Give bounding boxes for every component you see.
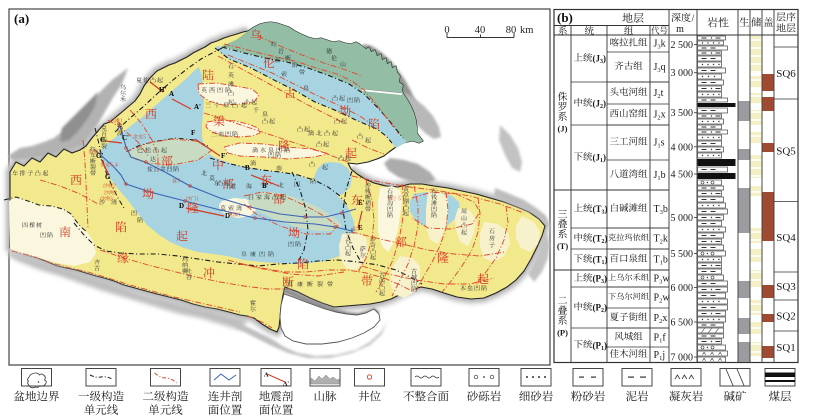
- svg-text:SQ6: SQ6: [776, 68, 796, 80]
- svg-text:5 000: 5 000: [671, 213, 694, 224]
- svg-text:(P3): (P3): [593, 274, 608, 286]
- svg-text:3 500: 3 500: [671, 108, 694, 119]
- svg-text:(T2): (T2): [593, 234, 608, 246]
- svg-text:C: C: [100, 136, 105, 144]
- svg-text:(T): (T): [557, 241, 569, 251]
- svg-text:(J2): (J2): [593, 99, 607, 111]
- svg-text:G: G: [105, 173, 111, 181]
- svg-text:F: F: [191, 129, 195, 137]
- svg-text:B': B': [262, 182, 269, 190]
- svg-text:F': F': [221, 152, 227, 160]
- svg-text:5 500: 5 500: [671, 249, 694, 260]
- svg-text:A: A: [264, 373, 269, 379]
- svg-text:6 000: 6 000: [671, 283, 694, 294]
- svg-text:SQ4: SQ4: [776, 232, 796, 244]
- svg-text:40: 40: [475, 25, 486, 36]
- svg-text:6 500: 6 500: [671, 318, 694, 329]
- svg-text:2 500: 2 500: [671, 40, 694, 51]
- svg-text:B: B: [245, 164, 250, 172]
- svg-text:(T1): (T1): [593, 255, 608, 267]
- svg-text:P3w: P3w: [654, 274, 671, 286]
- svg-text:SQ1: SQ1: [776, 342, 796, 354]
- svg-text:A': A': [194, 103, 201, 111]
- svg-text:(J): (J): [558, 124, 568, 134]
- svg-text:(P): (P): [557, 327, 568, 337]
- svg-text:7 000: 7 000: [671, 353, 694, 364]
- svg-text:0: 0: [444, 25, 449, 36]
- svg-text:(a): (a): [14, 11, 29, 26]
- svg-text:(P1): (P1): [593, 340, 608, 352]
- svg-text:SQ2: SQ2: [776, 311, 796, 323]
- svg-text:P2w: P2w: [654, 293, 671, 305]
- svg-text:4 500: 4 500: [671, 170, 694, 181]
- svg-text:(T3): (T3): [593, 204, 608, 216]
- svg-text:80: 80: [506, 25, 517, 36]
- svg-text:H': H': [159, 86, 166, 94]
- svg-text:(J3): (J3): [593, 54, 607, 66]
- svg-text:SQ3: SQ3: [776, 281, 796, 293]
- svg-text:(J1): (J1): [593, 153, 607, 165]
- svg-text:m: m: [676, 24, 684, 35]
- svg-text:A: A: [169, 90, 174, 98]
- svg-text:4 000: 4 000: [671, 142, 694, 153]
- svg-text:/: /: [692, 14, 695, 25]
- svg-text:A': A': [283, 382, 289, 388]
- svg-text:SQ5: SQ5: [776, 145, 796, 157]
- svg-text:(P2): (P2): [593, 303, 608, 315]
- svg-text:C': C': [122, 134, 129, 142]
- svg-text:D: D: [179, 202, 184, 210]
- svg-text:km: km: [520, 25, 533, 36]
- svg-text:(b): (b): [557, 10, 573, 25]
- svg-text:E: E: [358, 224, 363, 232]
- svg-text:3 000: 3 000: [671, 68, 694, 79]
